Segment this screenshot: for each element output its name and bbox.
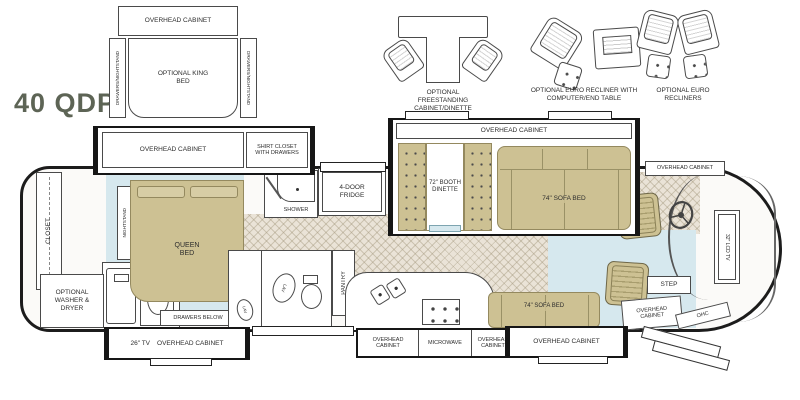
option-recliner-table-caption-label: OPTIONAL EURO RECLINER WITH COMPUTER/END… bbox=[528, 87, 640, 103]
double-sink-icon bbox=[369, 274, 408, 309]
option-recliner-table-caption: OPTIONAL EURO RECLINER WITH COMPUTER/END… bbox=[521, 84, 647, 106]
shirt-closet-label: SHIRT CLOSET WITH DRAWERS bbox=[251, 144, 303, 157]
fridge: 4-DOOR FRIDGE bbox=[318, 168, 386, 216]
overhead-cabinet-front: OVERHEAD CABINET bbox=[621, 295, 683, 330]
booth-dinette-label: 72" BOOTH DINETTE bbox=[429, 180, 461, 194]
dinette-chair-left-icon bbox=[380, 37, 425, 84]
washer-dryer-label: OPTIONAL WASHER & DRYER bbox=[46, 289, 98, 312]
option-recliners-caption: OPTIONAL EURO RECLINERS bbox=[633, 84, 733, 106]
option-king-overhead-cabinet: OVERHEAD CABINET bbox=[118, 6, 238, 36]
option-king-left-drawers-label: DRAWERS/NIGHTSTAND bbox=[115, 51, 120, 105]
ottoman-right-icon bbox=[683, 54, 709, 80]
floorplan-canvas: 40 QDP OVERHEAD CABINET DRAWERS/NIGHTSTA… bbox=[0, 0, 800, 400]
queen-bed-label: QUEEN BED bbox=[167, 242, 207, 259]
bedroom-overhead-cabinet-label: OVERHEAD CABINET bbox=[140, 146, 206, 154]
mid-bathroom: LAV LAV bbox=[228, 250, 332, 330]
microwave-label: MICROWAVE bbox=[428, 340, 462, 346]
euro-recliner-icon bbox=[529, 15, 585, 72]
option-king-bed: OPTIONAL KING BED bbox=[128, 38, 238, 118]
sofa-bed-top-label: 74" SOFA BED bbox=[540, 195, 588, 203]
nightstand: NIGHTSTAND bbox=[117, 186, 131, 260]
option-king-right-drawers: DRAWERS/NIGHTSTAND bbox=[240, 38, 257, 118]
tv-overhead-cabinet-label: OVERHEAD CABINET bbox=[157, 340, 223, 348]
cab-overhead-cabinet: OVERHEAD CABINET bbox=[645, 161, 725, 176]
living-overhead-cabinet: OVERHEAD CABINET bbox=[396, 123, 632, 139]
lav-sink: LAV bbox=[269, 270, 300, 306]
dinette-window bbox=[429, 225, 461, 232]
front-tv: 32" LCD TV bbox=[714, 210, 740, 284]
option-king-right-drawers-label: DRAWERS/NIGHTSTAND bbox=[246, 51, 251, 105]
pillow-icon bbox=[190, 186, 238, 198]
option-recliners-caption-label: OPTIONAL EURO RECLINERS bbox=[648, 87, 718, 103]
sofa-bed-top: 74" SOFA BED bbox=[497, 146, 631, 230]
toilet-tank-icon bbox=[303, 275, 318, 284]
sofa-bed-bottom-label: 74" SOFA BED bbox=[522, 303, 566, 310]
tv-slideout: 26" TV OVERHEAD CABINET bbox=[104, 327, 250, 360]
dinette-chair-right-icon bbox=[460, 37, 505, 84]
shower-label: SHOWER bbox=[284, 207, 309, 213]
overhead-cabinet-front-label: OVERHEAD CABINET bbox=[631, 305, 674, 321]
computer-screen-icon bbox=[602, 35, 632, 55]
queen-bed: QUEEN BED bbox=[130, 180, 244, 302]
kitchen-overhead-left-label: OVERHEAD CABINET bbox=[367, 337, 409, 350]
closet: CLOSET bbox=[36, 172, 62, 290]
drawers-below: DRAWERS BELOW bbox=[160, 310, 236, 326]
sofa-bed-bottom: 74" SOFA BED bbox=[488, 292, 600, 328]
slide-tab bbox=[548, 111, 612, 120]
lav-sink-small: LAV bbox=[234, 297, 255, 322]
stove-burners-icon bbox=[422, 299, 460, 325]
dinette-bench-right bbox=[464, 143, 492, 231]
shirt-closet: SHIRT CLOSET WITH DRAWERS bbox=[246, 132, 308, 168]
shower: SHOWER bbox=[264, 170, 318, 218]
entry-step: STEP bbox=[647, 276, 691, 294]
shower-pan-icon bbox=[277, 173, 315, 202]
door-vent-icon bbox=[114, 274, 129, 282]
shower-drain-icon bbox=[296, 188, 299, 191]
tv26-label: 26" TV bbox=[130, 340, 150, 348]
slide-tab bbox=[538, 356, 608, 364]
option-king-bed-label: OPTIONAL KING BED bbox=[155, 70, 211, 86]
fridge-label: 4-DOOR FRIDGE bbox=[330, 184, 374, 200]
option-king-left-drawers: DRAWERS/NIGHTSTAND bbox=[109, 38, 126, 118]
kitchen-overhead-left: OVERHEAD CABINET bbox=[358, 330, 419, 356]
bedroom-overhead-cabinet: OVERHEAD CABINET bbox=[102, 132, 244, 168]
dinette-table-stem-icon bbox=[426, 37, 460, 83]
bedroom-slideout: OVERHEAD CABINET SHIRT CLOSET WITH DRAWE… bbox=[93, 126, 315, 175]
washer-dryer: OPTIONAL WASHER & DRYER bbox=[40, 274, 104, 328]
windshield-line bbox=[738, 176, 776, 322]
sofa-overhead-cabinet-label: OVERHEAD CABINET bbox=[533, 338, 599, 346]
option-dinette-caption-label: OPTIONAL FREESTANDING CABINET/DINETTE bbox=[403, 89, 483, 112]
window-strip bbox=[320, 162, 386, 172]
window-strip bbox=[252, 326, 354, 336]
dinette-table-top-icon bbox=[398, 16, 488, 38]
front-tv-label: 32" LCD TV bbox=[724, 234, 730, 260]
euro-recliner-left-icon bbox=[636, 8, 681, 56]
closet-label: CLOSET bbox=[45, 218, 53, 244]
microwave: MICROWAVE bbox=[419, 330, 472, 356]
euro-recliner-right-icon bbox=[676, 8, 721, 56]
sofa-slideout-cabinet: OVERHEAD CABINET bbox=[505, 326, 628, 358]
lav-label: LAV bbox=[280, 283, 287, 292]
living-overhead-cabinet-label: OVERHEAD CABINET bbox=[481, 127, 547, 135]
bath-wall-line bbox=[261, 251, 262, 331]
slide-tab bbox=[405, 111, 469, 120]
booth-dinette-table: 72" BOOTH DINETTE bbox=[426, 143, 464, 231]
ottoman-left-icon bbox=[646, 54, 672, 80]
nightstand-label: NIGHTSTAND bbox=[122, 208, 127, 238]
toilet-bowl-icon bbox=[301, 284, 322, 309]
dinette-bench-left bbox=[398, 143, 426, 231]
lav-label: LAV bbox=[242, 306, 249, 314]
kitchen-cabinet-row: OVERHEAD CABINET MICROWAVE OVERHEAD CABI… bbox=[356, 328, 516, 358]
kitchen-counter bbox=[345, 272, 495, 330]
pillow-icon bbox=[137, 186, 185, 198]
living-slideout: OVERHEAD CABINET 72" BOOTH DINETTE 74" S… bbox=[388, 118, 640, 236]
slide-tab bbox=[150, 358, 212, 366]
cab-overhead-cabinet-label: OVERHEAD CABINET bbox=[657, 165, 713, 171]
computer-end-table-icon bbox=[593, 26, 642, 69]
